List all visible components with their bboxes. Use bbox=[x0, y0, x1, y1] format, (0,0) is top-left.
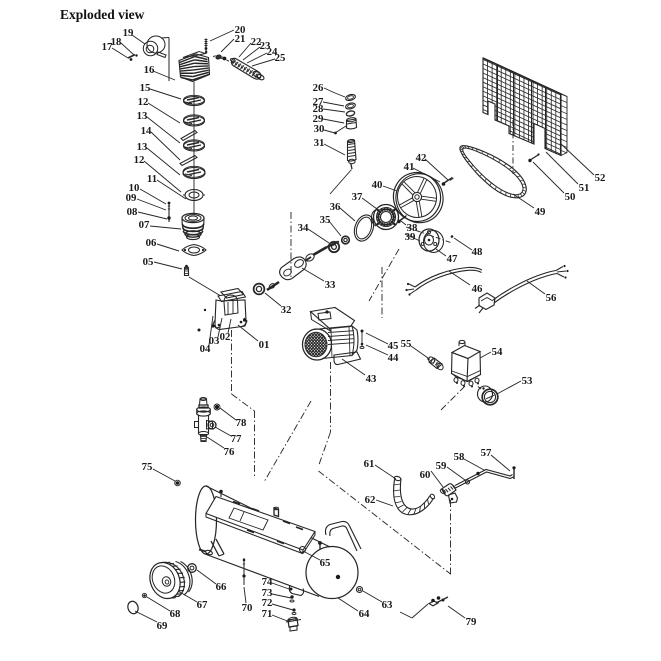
svg-text:07: 07 bbox=[139, 219, 150, 231]
svg-text:12: 12 bbox=[134, 154, 145, 166]
svg-text:71: 71 bbox=[262, 608, 273, 620]
svg-text:11: 11 bbox=[147, 173, 157, 185]
svg-text:21: 21 bbox=[235, 33, 246, 45]
svg-text:13: 13 bbox=[137, 141, 148, 153]
svg-text:49: 49 bbox=[535, 206, 546, 218]
svg-text:39: 39 bbox=[405, 231, 416, 243]
svg-text:55: 55 bbox=[401, 338, 412, 350]
svg-text:18: 18 bbox=[111, 36, 122, 48]
svg-text:54: 54 bbox=[492, 346, 503, 358]
svg-text:26: 26 bbox=[313, 82, 324, 94]
svg-text:02: 02 bbox=[220, 331, 231, 343]
svg-text:44: 44 bbox=[388, 352, 399, 364]
svg-text:Exploded view: Exploded view bbox=[60, 7, 145, 22]
svg-text:62: 62 bbox=[365, 494, 376, 506]
svg-text:65: 65 bbox=[320, 557, 331, 569]
svg-text:41: 41 bbox=[404, 161, 415, 173]
svg-text:45: 45 bbox=[388, 340, 399, 352]
svg-text:15: 15 bbox=[140, 82, 151, 94]
svg-text:68: 68 bbox=[170, 608, 181, 620]
svg-text:50: 50 bbox=[565, 191, 576, 203]
svg-text:60: 60 bbox=[420, 469, 431, 481]
svg-text:14: 14 bbox=[141, 125, 152, 137]
svg-text:53: 53 bbox=[522, 375, 533, 387]
svg-text:58: 58 bbox=[454, 451, 465, 463]
svg-text:46: 46 bbox=[472, 283, 483, 295]
svg-text:63: 63 bbox=[382, 599, 393, 611]
svg-text:04: 04 bbox=[200, 343, 211, 355]
svg-text:79: 79 bbox=[466, 616, 477, 628]
svg-text:05: 05 bbox=[143, 256, 154, 268]
svg-text:34: 34 bbox=[298, 222, 309, 234]
svg-text:31: 31 bbox=[314, 137, 325, 149]
svg-text:61: 61 bbox=[364, 458, 375, 470]
svg-text:64: 64 bbox=[359, 608, 370, 620]
svg-text:01: 01 bbox=[259, 339, 270, 351]
svg-text:13: 13 bbox=[137, 110, 148, 122]
svg-text:75: 75 bbox=[142, 461, 153, 473]
svg-text:69: 69 bbox=[157, 620, 168, 632]
svg-text:40: 40 bbox=[372, 179, 383, 191]
svg-text:73: 73 bbox=[262, 587, 273, 599]
svg-text:67: 67 bbox=[197, 599, 208, 611]
svg-text:19: 19 bbox=[123, 27, 134, 39]
svg-text:66: 66 bbox=[216, 581, 227, 593]
svg-text:78: 78 bbox=[236, 417, 247, 429]
svg-text:35: 35 bbox=[320, 214, 331, 226]
svg-text:25: 25 bbox=[275, 52, 286, 64]
svg-text:47: 47 bbox=[447, 253, 458, 265]
svg-text:59: 59 bbox=[436, 460, 447, 472]
svg-text:32: 32 bbox=[281, 304, 292, 316]
svg-text:70: 70 bbox=[242, 602, 253, 614]
svg-text:48: 48 bbox=[472, 246, 483, 258]
svg-text:16: 16 bbox=[144, 64, 155, 76]
svg-text:42: 42 bbox=[416, 152, 427, 164]
svg-text:77: 77 bbox=[231, 433, 242, 445]
svg-text:43: 43 bbox=[366, 373, 377, 385]
svg-text:56: 56 bbox=[546, 292, 557, 304]
svg-text:30: 30 bbox=[314, 123, 325, 135]
svg-text:33: 33 bbox=[325, 279, 336, 291]
svg-text:12: 12 bbox=[138, 96, 149, 108]
svg-text:52: 52 bbox=[595, 172, 606, 184]
svg-text:74: 74 bbox=[262, 576, 273, 588]
svg-text:10: 10 bbox=[129, 182, 140, 194]
svg-text:57: 57 bbox=[481, 447, 492, 459]
svg-text:08: 08 bbox=[127, 206, 138, 218]
svg-text:51: 51 bbox=[579, 182, 590, 194]
svg-text:06: 06 bbox=[146, 237, 157, 249]
svg-text:76: 76 bbox=[224, 446, 235, 458]
svg-text:37: 37 bbox=[352, 191, 363, 203]
svg-text:36: 36 bbox=[330, 201, 341, 213]
